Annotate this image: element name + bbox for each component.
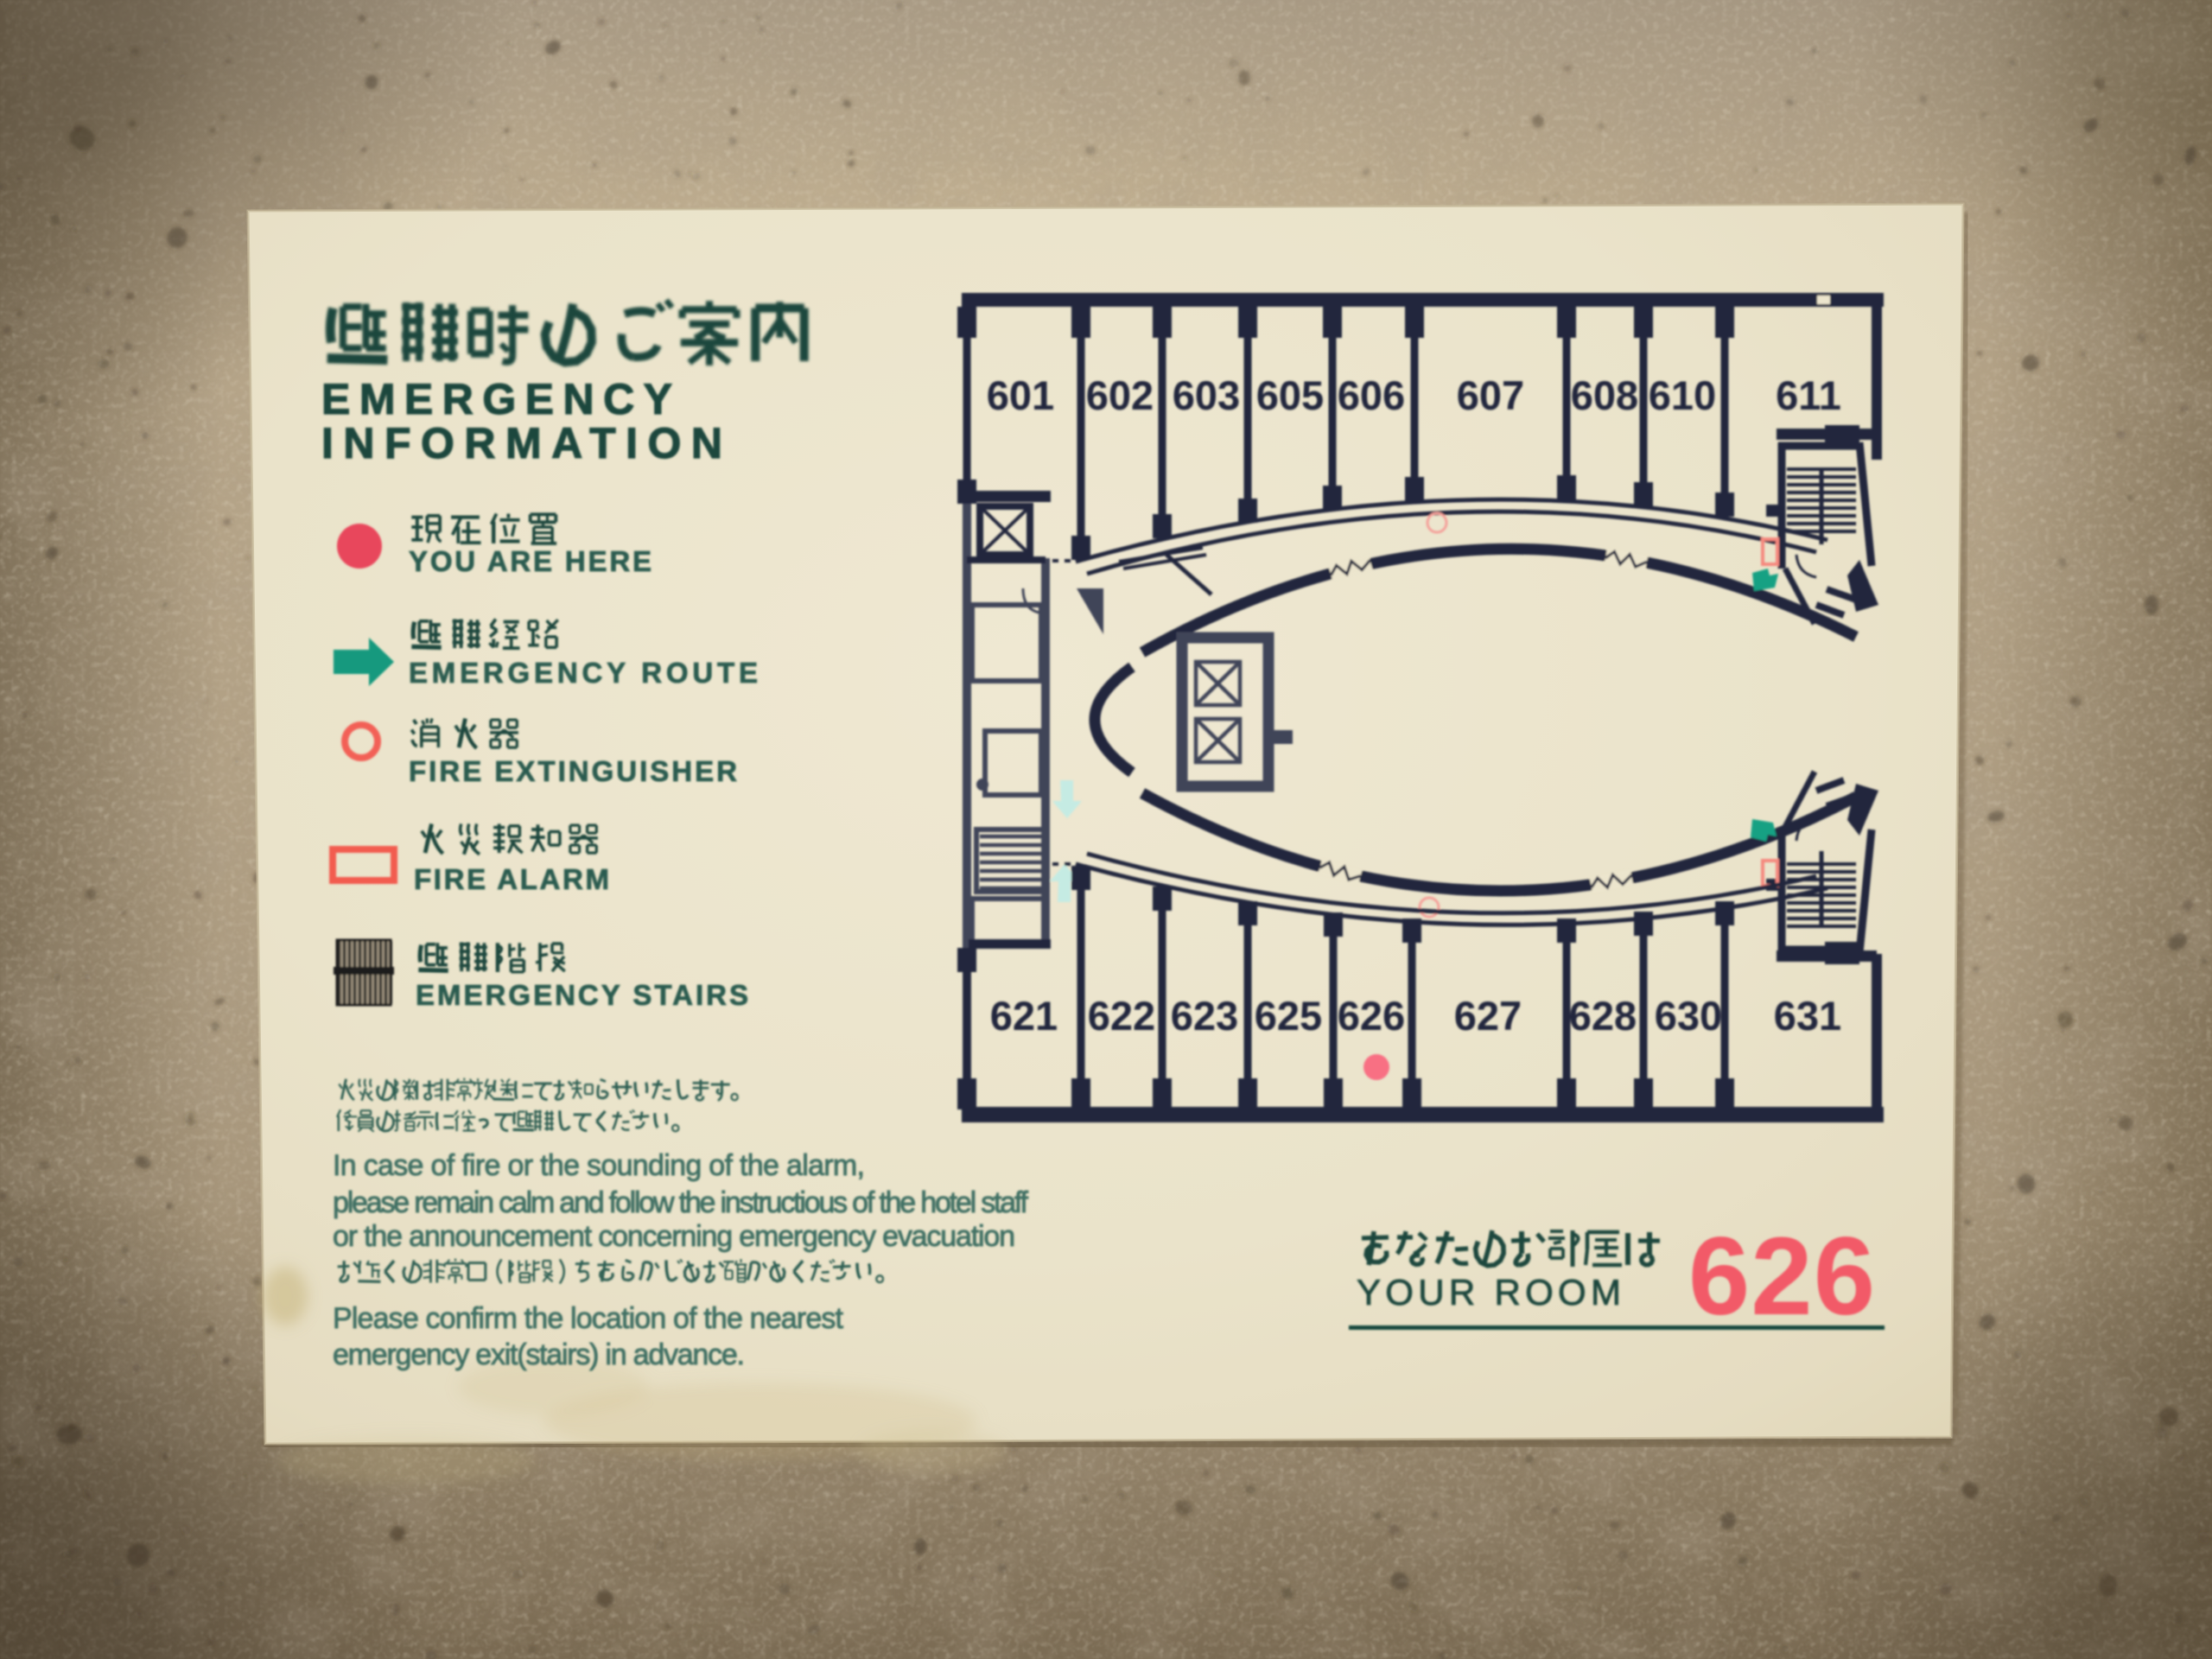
svg-text:608: 608 (1571, 372, 1638, 418)
svg-text:625: 625 (1255, 993, 1322, 1039)
svg-text:630: 630 (1655, 993, 1722, 1039)
svg-text:607: 607 (1457, 372, 1524, 418)
svg-text:emergency exit(stairs) in adva: emergency exit(stairs) in advance. (333, 1338, 745, 1371)
svg-text:FIRE EXTINGUISHER: FIRE EXTINGUISHER (409, 755, 737, 787)
svg-text:626: 626 (1338, 993, 1405, 1039)
svg-text:or the announcement concerning: or the announcement concerning emergency… (333, 1220, 1015, 1253)
svg-text:623: 623 (1171, 993, 1238, 1039)
svg-text:626: 626 (1688, 1215, 1875, 1338)
svg-text:EMERGENCY ROUTE: EMERGENCY ROUTE (409, 657, 758, 689)
svg-text:611: 611 (1776, 372, 1841, 418)
svg-text:EMERGENCY: EMERGENCY (321, 375, 672, 423)
svg-text:621: 621 (990, 993, 1058, 1039)
svg-text:601: 601 (987, 372, 1054, 418)
svg-text:606: 606 (1338, 372, 1405, 418)
svg-text:622: 622 (1088, 993, 1155, 1039)
svg-text:FIRE ALARM: FIRE ALARM (414, 863, 609, 895)
svg-text:631: 631 (1774, 993, 1841, 1039)
svg-text:please remain calm and follow: please remain calm and follow the instru… (333, 1186, 1029, 1219)
svg-text:603: 603 (1173, 372, 1240, 418)
svg-text:605: 605 (1256, 372, 1324, 418)
svg-text:628: 628 (1569, 993, 1637, 1039)
svg-text:In case of fire or the soundin: In case of fire or the sounding of the a… (333, 1149, 865, 1182)
svg-text:610: 610 (1649, 372, 1716, 418)
svg-text:YOU ARE HERE: YOU ARE HERE (409, 545, 652, 577)
svg-text:627: 627 (1454, 993, 1522, 1039)
svg-text:EMERGENCY STAIRS: EMERGENCY STAIRS (416, 979, 748, 1011)
svg-text:YOUR ROOM: YOUR ROOM (1357, 1272, 1621, 1313)
svg-text:602: 602 (1086, 372, 1154, 418)
svg-text:Please confirm the location of: Please confirm the location of the neare… (333, 1302, 844, 1335)
